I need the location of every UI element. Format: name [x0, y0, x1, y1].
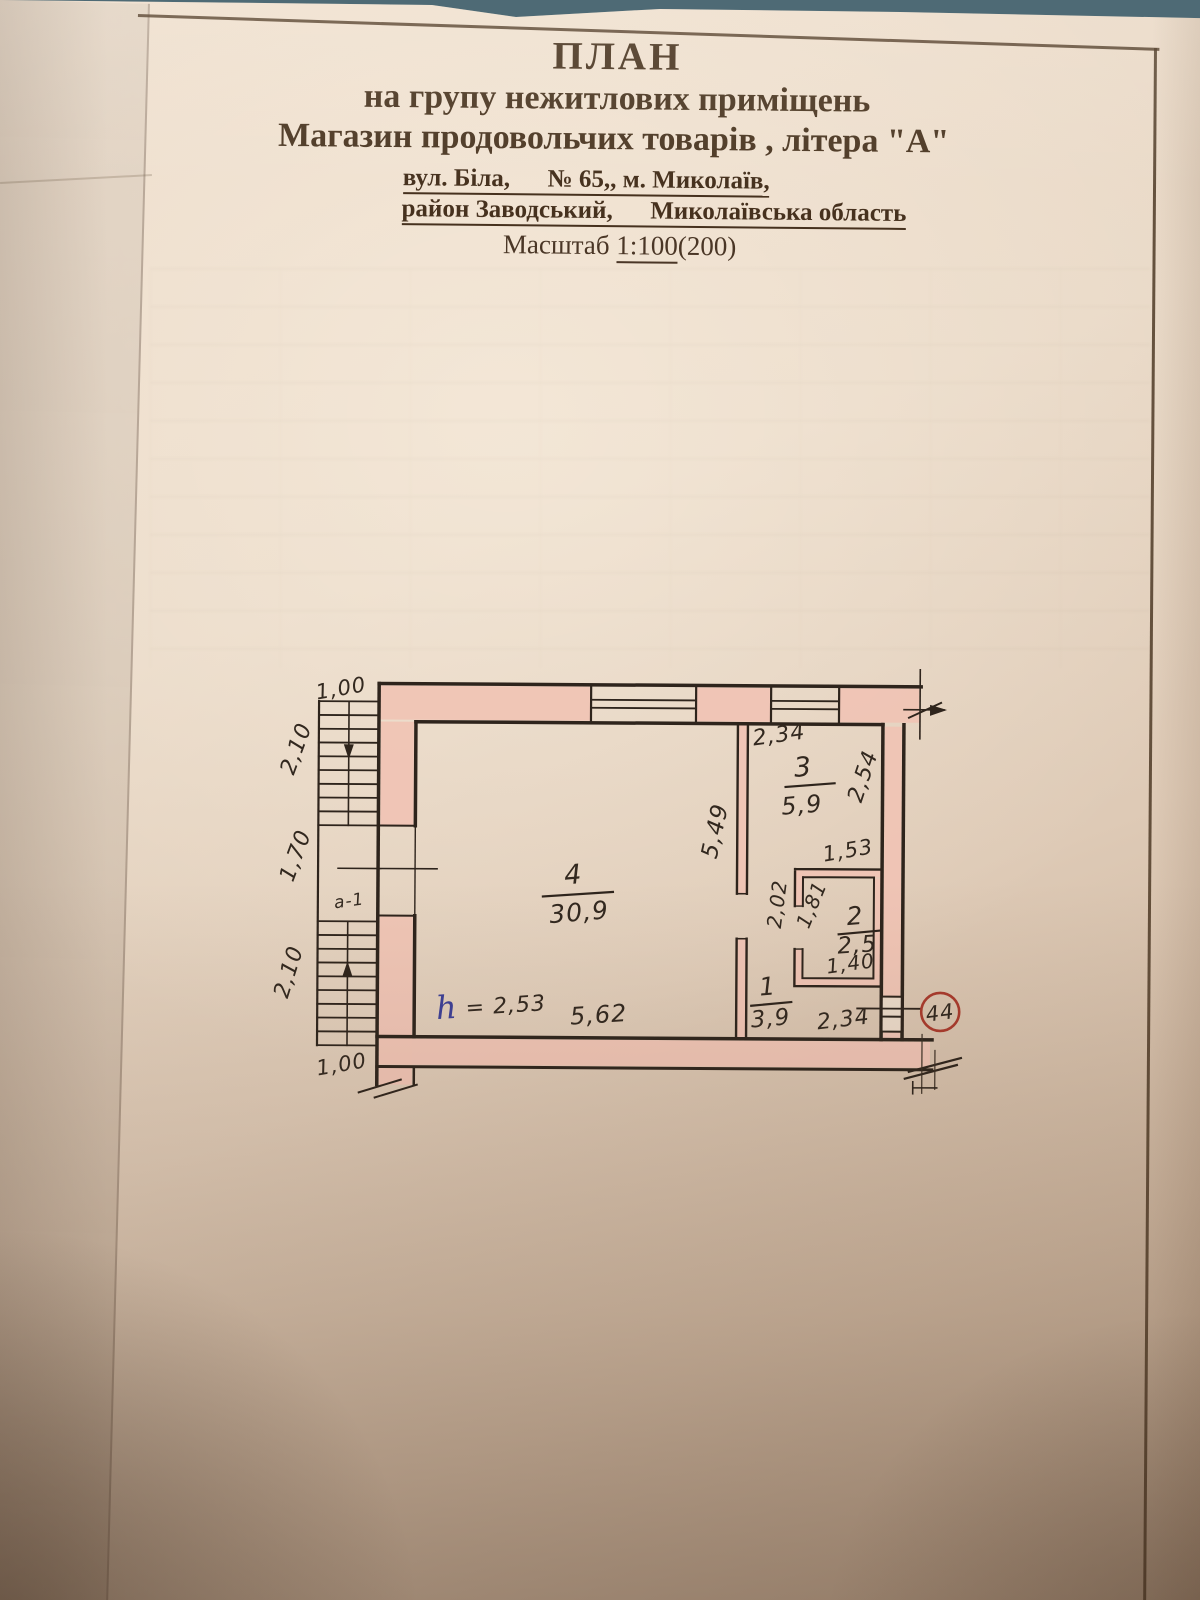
room-labels: 4 30,9 3 5,9 2 2,5 1 3,9: [542, 750, 882, 1034]
paper-sheet: ПЛАН на групу нежитлових приміщень Магаз…: [0, 0, 1200, 1600]
room-1-area: 3,9: [750, 1004, 792, 1033]
scale-note: Масштаб 1:100(200): [20, 224, 1200, 267]
reverse-side-bleed-through: [150, 268, 1150, 668]
dim-stair-landing: 1,70: [275, 827, 317, 885]
floor-plan-drawing: 44 1,00 2,10 1,70 2,10 1,00 а-1 5,49 2,3…: [259, 643, 992, 1117]
dim-room4-width: 5,62: [569, 999, 628, 1031]
stair-direction-arrow-up: [342, 961, 352, 976]
room-4-area: 30,9: [548, 895, 610, 929]
wall-outlines: [359, 666, 964, 1101]
title-block: ПЛАН на групу нежитлових приміщень Магаз…: [0, 0, 1200, 6]
scanned-floor-plan-document: ПЛАН на групу нежитлових приміщень Магаз…: [0, 0, 1200, 1600]
dim-stair-flight-top: 2,10: [276, 720, 318, 778]
room-3-area: 5,9: [780, 789, 823, 820]
dim-room2-width-top: 1,53: [821, 834, 875, 866]
dim-stair-flight-bottom: 2,10: [269, 943, 309, 1001]
dim-room3-depth: 2,54: [843, 747, 883, 805]
room-2-area: 2,5: [837, 931, 878, 959]
room-3-number: 3: [793, 751, 814, 783]
room-4-number: 4: [563, 859, 584, 891]
plot-number: 44: [924, 999, 956, 1027]
ceiling-height-note: h = 2,53: [435, 982, 547, 1027]
dim-stair-width-top: 1,00: [314, 672, 368, 704]
room-1-number: 1: [758, 971, 777, 1001]
stair-flight-label: а-1: [333, 889, 366, 913]
dim-room4-depth: 5,49: [697, 801, 734, 861]
dim-stair-width-bottom: 1,00: [315, 1048, 369, 1080]
stair-landing-line: [338, 868, 437, 869]
dim-room2-side-left: 2,02: [762, 878, 792, 929]
dim-room1-width: 2,34: [816, 1004, 872, 1035]
room-2-number: 2: [845, 901, 864, 931]
